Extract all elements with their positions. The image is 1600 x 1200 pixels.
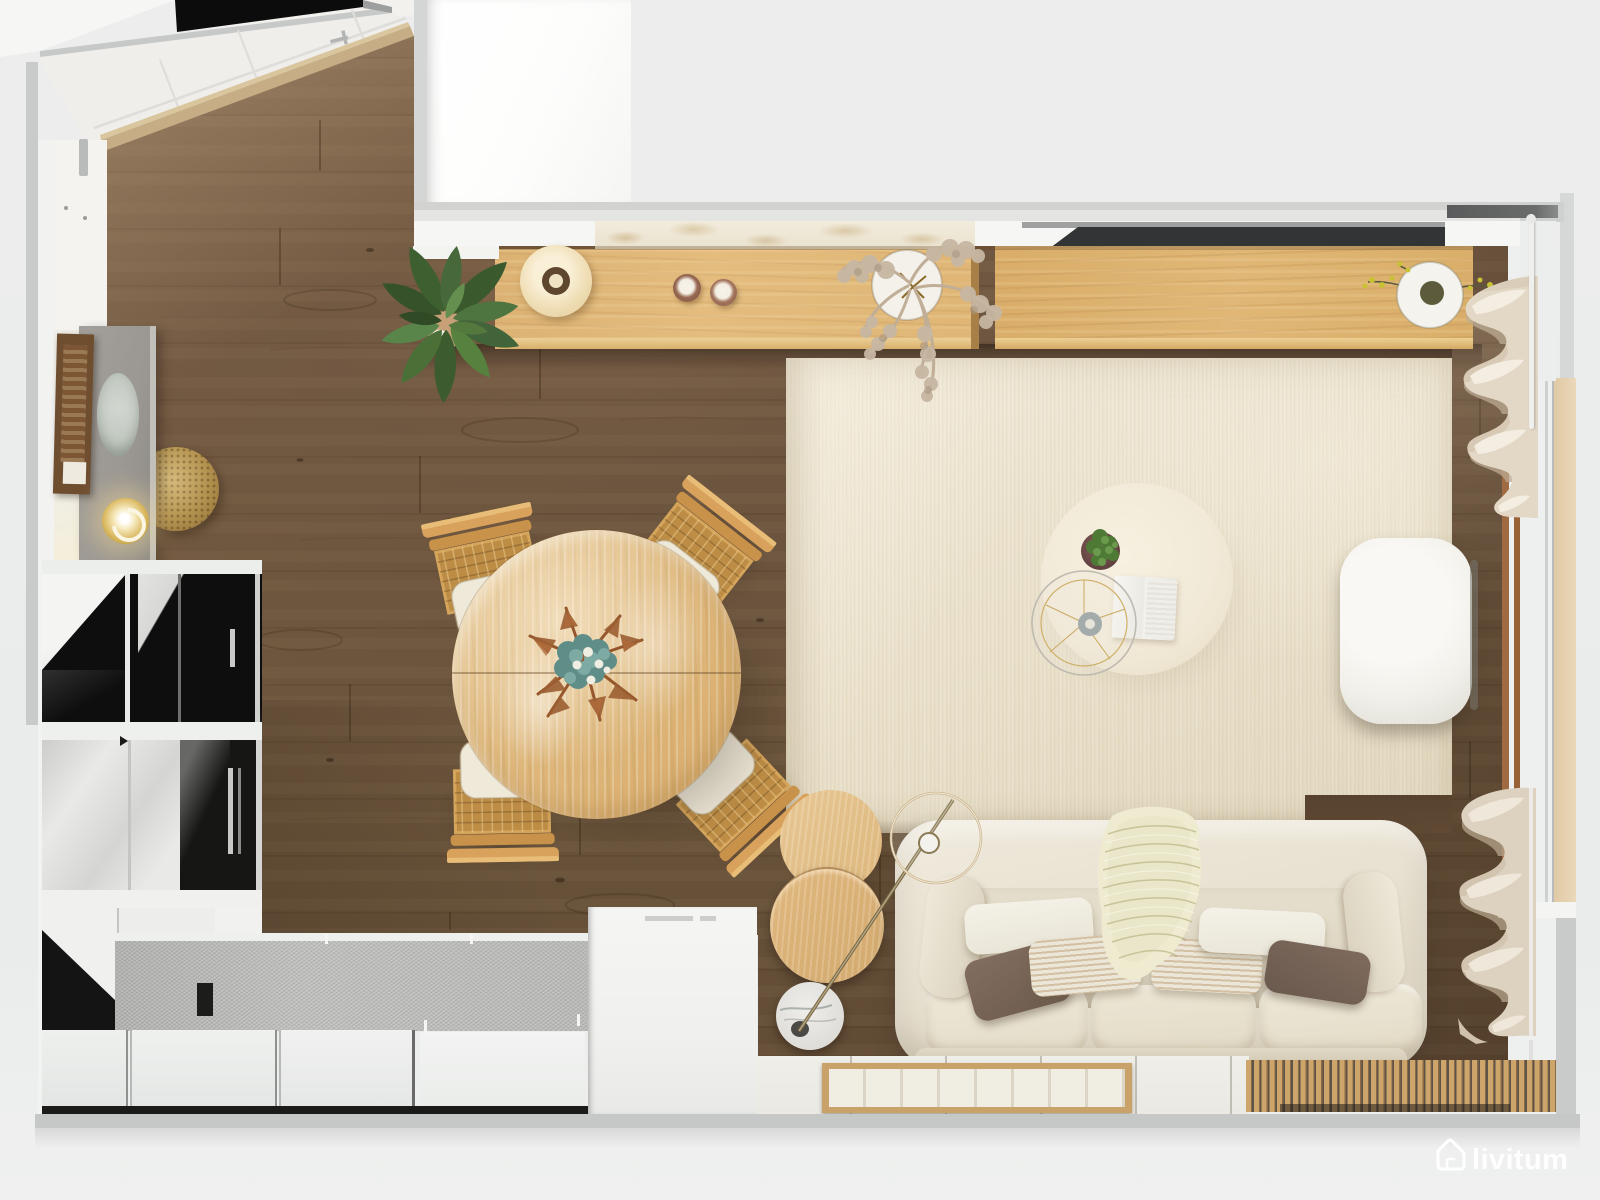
svg-text:livitum: livitum: [1472, 1144, 1568, 1176]
